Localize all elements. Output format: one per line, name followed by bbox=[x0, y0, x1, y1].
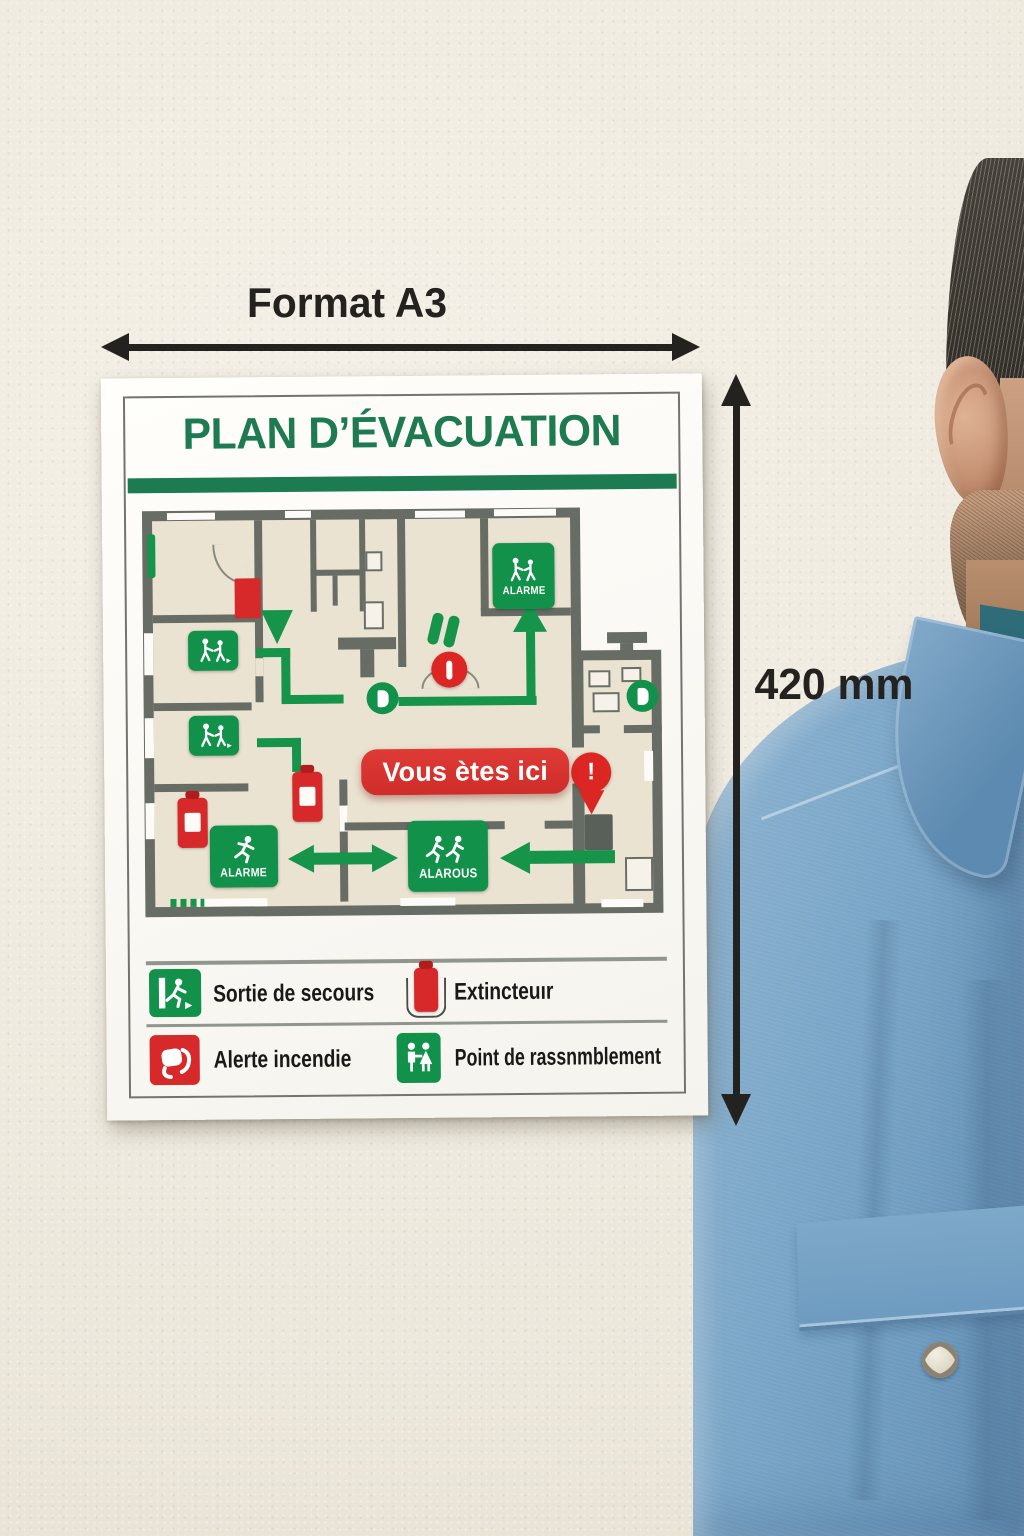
photo-scene: PLAN D’ÉVACUATION bbox=[0, 0, 1024, 1536]
pillar bbox=[360, 649, 374, 677]
furniture bbox=[365, 551, 382, 571]
sign-label: ALAROUS bbox=[419, 865, 478, 881]
wall-segment bbox=[574, 725, 600, 733]
floor-plan: ! ALARME bbox=[142, 507, 667, 918]
route-segment bbox=[281, 648, 290, 702]
fire-alert-icon bbox=[150, 1035, 200, 1085]
top-exit-sign: ALARME bbox=[492, 543, 555, 610]
extinguisher-cap bbox=[419, 961, 433, 969]
furniture bbox=[588, 670, 610, 687]
door-point-icon bbox=[366, 682, 398, 714]
alert-pin-icon: ! bbox=[571, 752, 611, 792]
equipment-block bbox=[585, 814, 613, 850]
door-glyph bbox=[377, 690, 388, 707]
route-segment bbox=[530, 850, 615, 864]
evacuation-poster: PLAN D’ÉVACUATION bbox=[101, 373, 708, 1120]
window-slit bbox=[145, 803, 154, 839]
fire-cabinet bbox=[235, 578, 261, 618]
alarm-point-icon bbox=[431, 651, 467, 687]
wall-segment bbox=[624, 725, 662, 733]
wall-segment bbox=[480, 518, 489, 610]
door-glyph bbox=[637, 687, 648, 704]
you-are-here-badge: Vous ètes ici bbox=[361, 748, 569, 796]
window-slit bbox=[285, 511, 311, 518]
stairs-marker bbox=[170, 899, 204, 907]
window-slit bbox=[415, 510, 465, 517]
route-segment bbox=[312, 852, 374, 865]
window-slit bbox=[601, 899, 643, 907]
legend-label: Alerte incendie bbox=[214, 1045, 352, 1074]
wall-segment bbox=[333, 576, 338, 606]
wall-segment bbox=[154, 783, 248, 792]
shirt-pocket-button bbox=[922, 1342, 958, 1378]
bottom-left-alarm-sign: ALARME bbox=[210, 825, 279, 888]
height-dimension-label: 420 mm bbox=[754, 660, 913, 710]
shirt-pocket-flap bbox=[797, 1205, 1024, 1332]
window-slit bbox=[144, 633, 153, 675]
extinguisher-label bbox=[299, 787, 315, 806]
ear-fold bbox=[941, 379, 996, 460]
extinguisher-label bbox=[185, 813, 201, 832]
furniture bbox=[625, 857, 653, 891]
extinguisher-body bbox=[414, 968, 438, 1012]
walking-figures-icon bbox=[502, 555, 544, 583]
window-slit bbox=[644, 751, 653, 781]
pillar bbox=[620, 643, 633, 655]
width-arrowhead-right bbox=[672, 333, 700, 361]
sign-label: ALARME bbox=[221, 865, 268, 879]
width-arrow-line bbox=[128, 344, 674, 351]
wall-segment bbox=[310, 569, 365, 575]
sign-label: ALARME bbox=[502, 584, 545, 596]
window-slit bbox=[400, 898, 455, 906]
extinguisher-cap bbox=[300, 765, 314, 773]
door-point-icon bbox=[626, 680, 658, 712]
legend-label: Point de rassnmblement bbox=[455, 1043, 661, 1073]
route-segment bbox=[526, 628, 536, 705]
legend-label: Sortie de secours bbox=[213, 979, 374, 1008]
door-gap bbox=[255, 658, 263, 676]
width-arrowhead-left bbox=[101, 333, 129, 361]
route-down-arrow-icon bbox=[261, 610, 293, 644]
pillar bbox=[607, 632, 647, 643]
exit-route-sign bbox=[189, 715, 239, 755]
wall-segment bbox=[339, 780, 348, 902]
walking-figures-icon bbox=[193, 636, 233, 664]
extinguisher-icon bbox=[292, 772, 322, 822]
running-figure-icon bbox=[227, 834, 261, 864]
window-slit bbox=[494, 509, 556, 517]
exit-route-sign bbox=[188, 630, 238, 670]
window-slit bbox=[145, 718, 154, 758]
width-dimension-label: Format A3 bbox=[69, 279, 626, 327]
emergency-exit-icon bbox=[149, 969, 201, 1017]
legend-label: Extincteuır bbox=[454, 978, 553, 1007]
height-arrow-line bbox=[733, 404, 740, 1096]
bottom-center-exit-sign: ALAROUS bbox=[408, 820, 489, 892]
furniture bbox=[593, 692, 620, 712]
window-slit bbox=[167, 513, 215, 520]
furniture bbox=[364, 601, 384, 629]
assembly-point-icon bbox=[396, 1033, 440, 1083]
route-left-arrowhead bbox=[500, 842, 530, 874]
exit-door-marker bbox=[147, 534, 155, 578]
height-arrowhead-top bbox=[721, 374, 751, 406]
wall-segment bbox=[545, 821, 573, 829]
alert-pin-tail bbox=[578, 790, 604, 814]
alarm-glyph bbox=[446, 660, 452, 679]
running-figures-icon bbox=[422, 832, 474, 864]
route-right-arrowhead bbox=[372, 844, 398, 872]
wall-segment bbox=[397, 519, 406, 667]
pillar bbox=[338, 637, 396, 650]
route-left-arrowhead bbox=[288, 845, 314, 873]
height-arrowhead-bottom bbox=[721, 1094, 751, 1126]
assembly-figures-glyph bbox=[401, 1038, 437, 1078]
walking-figures-icon bbox=[194, 721, 234, 749]
route-segment bbox=[399, 696, 537, 706]
exit-run-glyph bbox=[155, 975, 195, 1011]
extinguisher-icon bbox=[177, 798, 207, 848]
poster-title: PLAN D’ÉVACUATION bbox=[139, 406, 664, 461]
wall-segment bbox=[154, 702, 252, 711]
fire-alert-glyph bbox=[155, 1040, 195, 1080]
extinguisher-cap bbox=[185, 791, 199, 799]
window-slit bbox=[197, 898, 267, 907]
wall-segment bbox=[310, 520, 317, 612]
route-segment bbox=[282, 695, 344, 705]
